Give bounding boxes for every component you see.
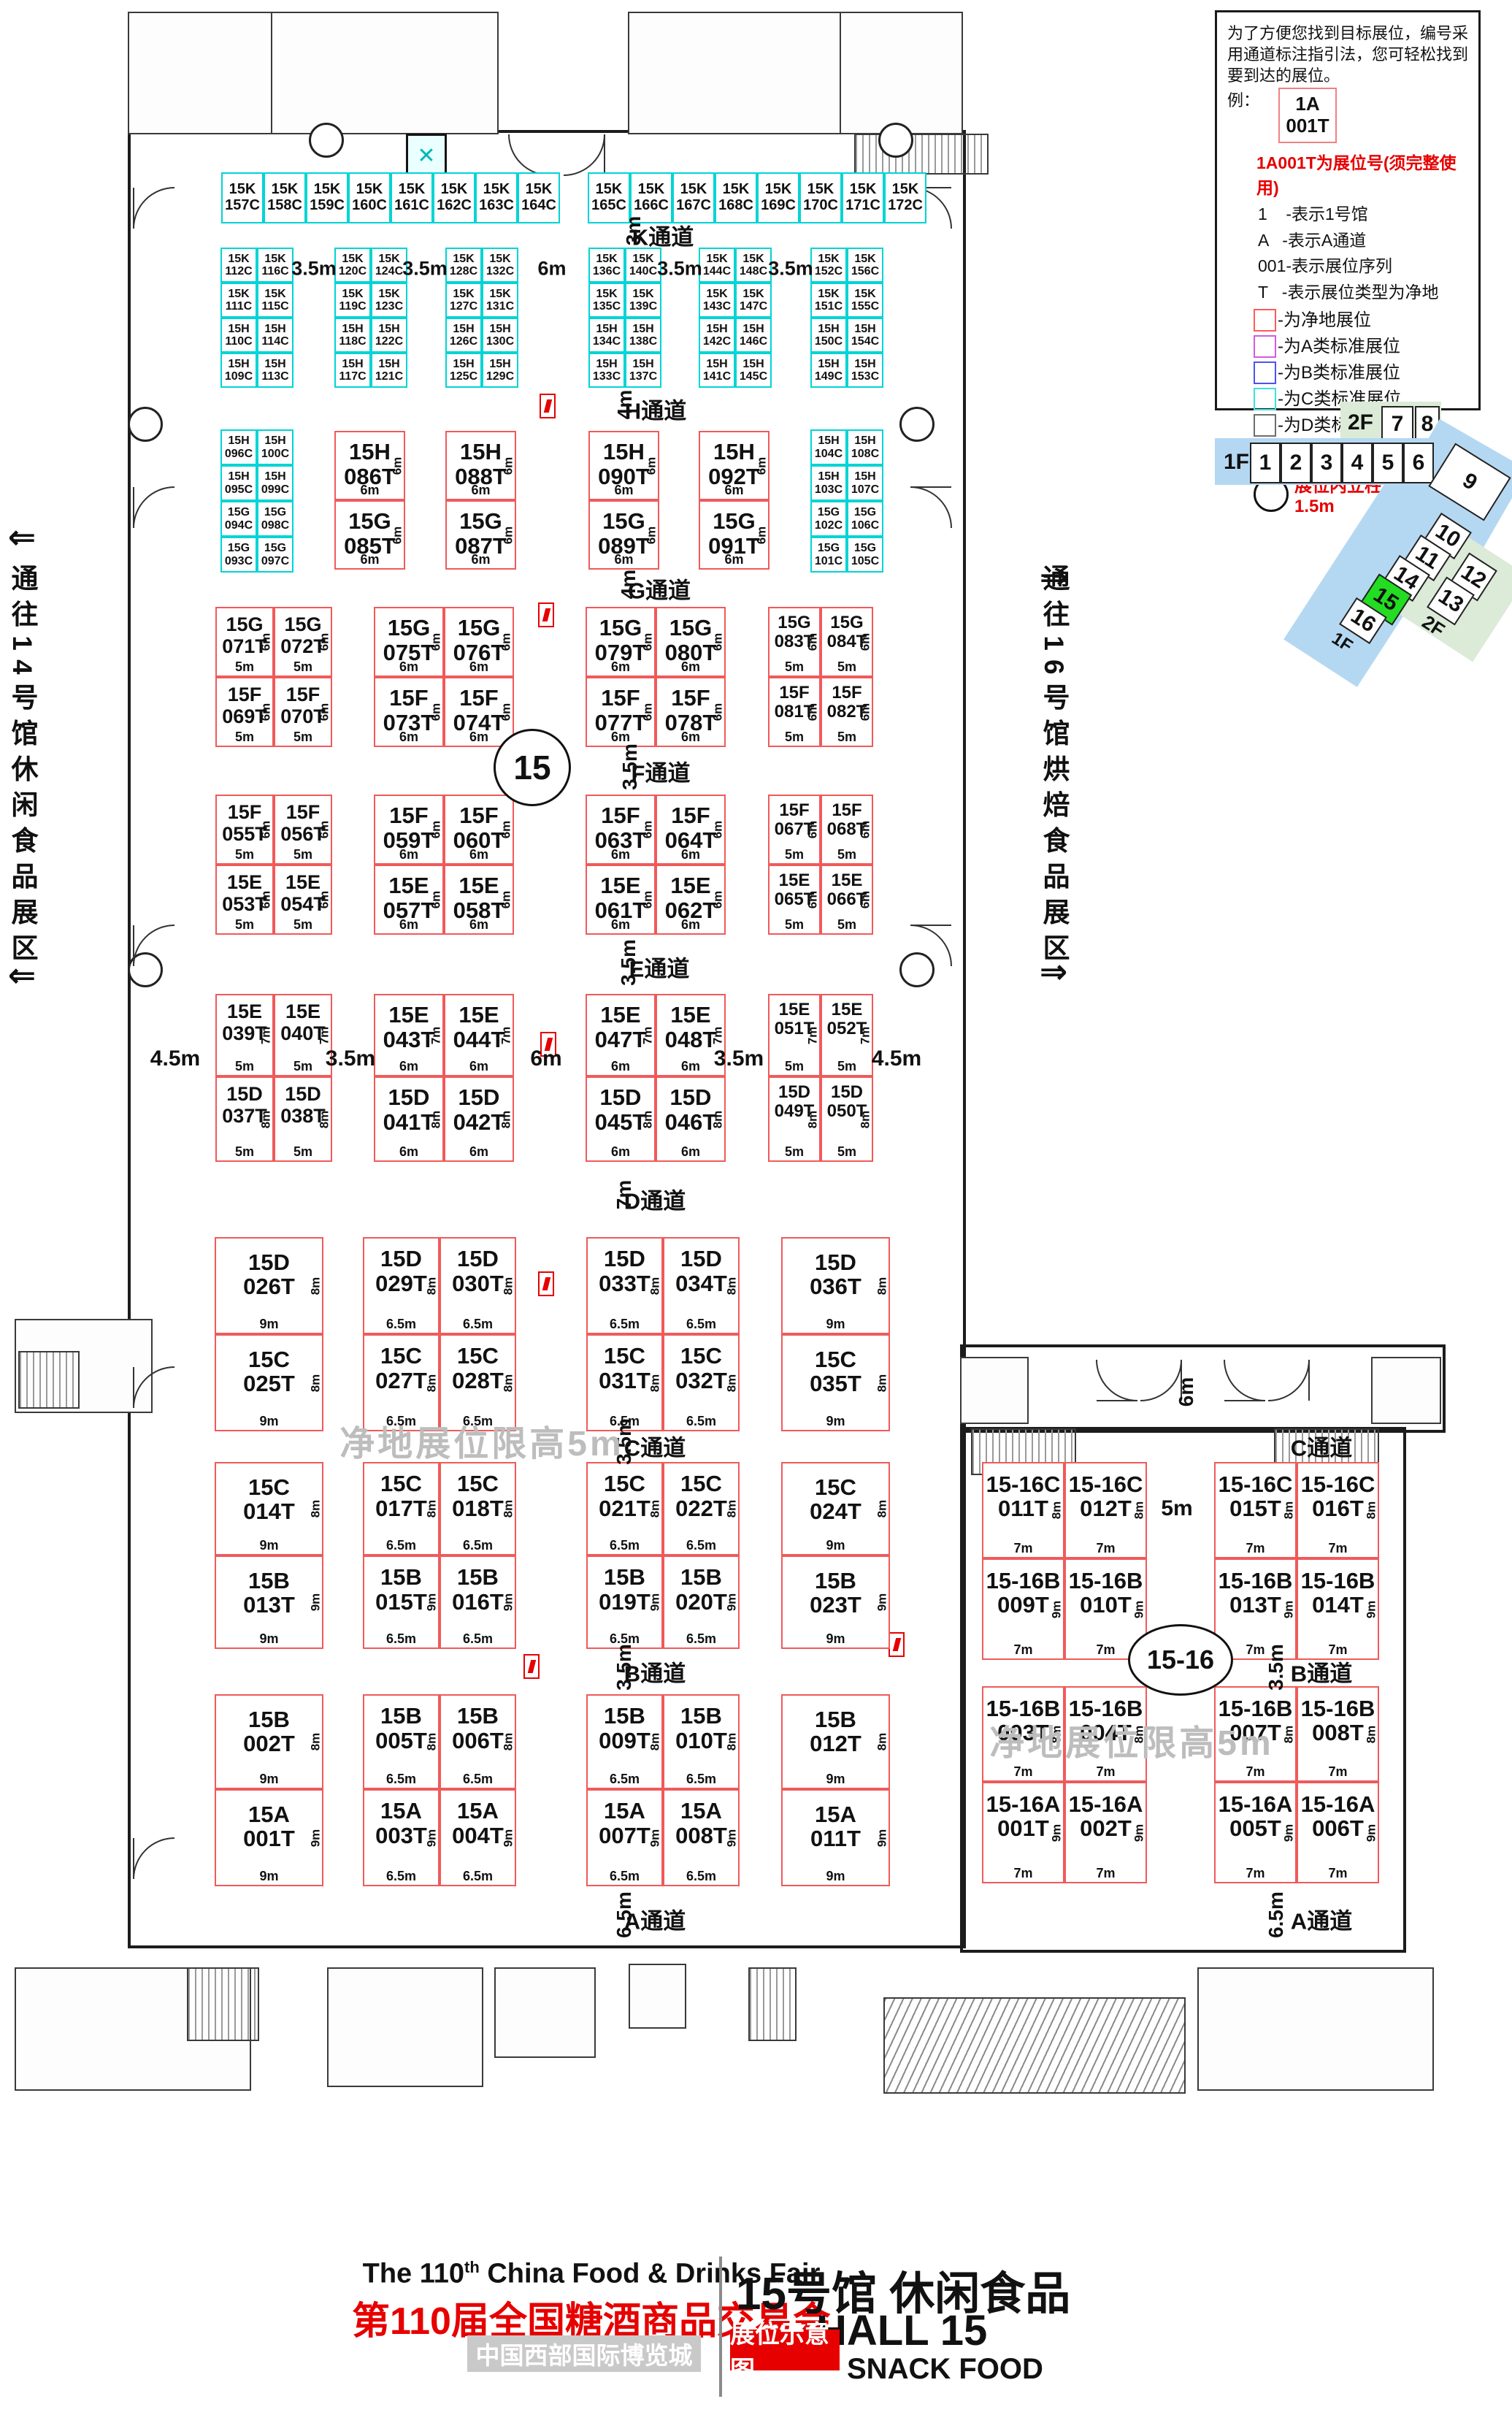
booth-depth-label: 8m (1050, 1501, 1064, 1520)
booth-code: 15C035T (810, 1347, 861, 1396)
booth-depth-label: 6m (318, 891, 332, 909)
booth-15K135C: 15K135C (588, 283, 625, 318)
swatch-text: -为B类标准展位 (1278, 364, 1400, 383)
booth-code: 15K123C (375, 288, 403, 313)
booth-15K139C: 15K139C (625, 283, 661, 318)
booth-code: 15D045T (595, 1085, 647, 1134)
booth-width-label: 5m (770, 847, 819, 862)
booth-code: 15C031T (599, 1344, 651, 1393)
booth-depth-label: 8m (711, 1110, 726, 1128)
booth-15K127C: 15K127C (445, 283, 482, 318)
booth-depth-label: 6m (711, 891, 726, 909)
booth-width-label: 7m (1216, 1866, 1295, 1881)
booth-code: 15G098C (261, 506, 289, 532)
legend-example-booth: 1A 001T (1278, 88, 1337, 143)
booth-code: 15K147C (740, 288, 767, 313)
booth-width-label: 6m (375, 1059, 442, 1074)
top-room-2 (840, 12, 963, 134)
booth-depth-label: 6m (502, 456, 516, 475)
booth-code: 15C022T (675, 1471, 727, 1520)
booth-depth-label: 6m (859, 703, 873, 722)
plan-label-36: 净地展位限高5m (989, 1714, 1273, 1765)
legend-example: 例： 1A 001T (1227, 88, 1470, 143)
booth-code: 15H114C (261, 323, 288, 348)
booth-width-label: 5m (822, 659, 872, 675)
booth-depth-label: 6m (806, 703, 821, 722)
booth-code: 15H125C (450, 358, 477, 383)
booth-depth-label: 8m (648, 1500, 663, 1518)
plan-label-22: 6.5m (613, 1891, 636, 1938)
booth-15D030T: 15D030T6.5m8m (440, 1237, 516, 1334)
booth-15K168C: 15K168C (715, 172, 757, 223)
booth-code: 15G076T (453, 616, 505, 665)
booth-code: 15H134C (593, 323, 621, 348)
booth-15K144C: 15K144C (699, 248, 735, 283)
booth-code: 15G079T (595, 616, 647, 665)
legend-intro: 为了方便您找到目标展位，编号采 用通道标注指引法，您可轻松找到 要到达的展位。 (1227, 23, 1470, 86)
booth-width-label: 5m (770, 1059, 819, 1074)
door-arc-11 (1095, 1358, 1139, 1402)
booth-code: 15H150C (815, 323, 843, 348)
booth-15-16C016T: 15-16C016T7m8m (1297, 1462, 1379, 1558)
booth-width-label: 5m (822, 847, 872, 862)
booth-15E047T: 15E047T6m7m (586, 994, 656, 1076)
booth-depth-label: 8m (725, 1733, 740, 1751)
booth-code: 15B019T (599, 1565, 651, 1614)
booth-code: 15D029T (375, 1247, 427, 1295)
booth-width-label: 6m (587, 1144, 654, 1160)
booth-15H145C: 15H145C (735, 353, 772, 388)
booth-code: 15H113C (261, 358, 288, 383)
booth-width-label: 7m (1216, 1764, 1295, 1780)
booth-15K132C: 15K132C (482, 248, 518, 283)
booth-15B023T: 15B023T9m9m (781, 1555, 890, 1649)
booth-depth-label: 8m (1282, 1501, 1297, 1520)
booth-code: 15F064T (665, 803, 717, 852)
booth-15B019T: 15B019T6.5m9m (586, 1555, 663, 1649)
title-divider (719, 2257, 722, 2397)
booth-code: 15G080T (665, 616, 717, 665)
door-arc-13 (1223, 1358, 1267, 1402)
plan-label-4: 6m (537, 258, 566, 280)
plan-label-27: A通道 (1291, 1903, 1352, 1936)
booth-width-label: 6m (657, 659, 724, 675)
hall-title-en: HALL 15 (816, 2306, 987, 2355)
booth-15B015T: 15B015T6.5m9m (363, 1555, 440, 1649)
booth-code: 15K162C (437, 182, 472, 213)
booth-depth-label: 9m (648, 1593, 663, 1612)
booth-depth-label: 6m (641, 891, 656, 909)
booth-15C021T: 15C021T6.5m8m (586, 1462, 663, 1555)
booth-depth-label: 6m (391, 456, 405, 475)
booth-depth-label: 6m (645, 526, 659, 544)
booth-15C032T: 15C032T6.5m8m (663, 1334, 740, 1431)
booth-15E058T: 15E058T6m6m (444, 865, 514, 935)
booth-width-label: 5m (217, 917, 272, 933)
booth-width-label: 6m (590, 552, 658, 567)
booth-width-label: 7m (1066, 1764, 1145, 1780)
booth-code: 15H145C (740, 358, 767, 383)
booth-code: 15K159C (310, 182, 345, 213)
booth-depth-label: 9m (725, 1829, 740, 1847)
booth-width-label: 5m (217, 847, 272, 862)
booth-15F078T: 15F078T6m6m (656, 677, 726, 747)
booth-depth-label: 6m (755, 456, 770, 475)
booth-code: 15H137C (629, 358, 657, 383)
booth-code: 15H096C (225, 435, 253, 460)
booth-depth-label: 8m (425, 1374, 440, 1392)
booth-code: 15K160C (352, 182, 387, 213)
booth-15F074T: 15F074T6m6m (444, 677, 514, 747)
booth-depth-label: 8m (502, 1277, 516, 1295)
booth-depth-label: 6m (755, 526, 770, 544)
booth-code: 15B005T (375, 1704, 427, 1753)
booth-code: 15K112C (225, 253, 252, 278)
booth-code: 15K115C (261, 288, 288, 313)
booth-15E039T: 15E039T5m7m (215, 994, 274, 1076)
booth-code: 15K116C (261, 253, 288, 278)
hall-number-circle: 15 (494, 729, 571, 806)
booth-code: 15K128C (450, 253, 477, 278)
booth-15B012T: 15B012T9m8m (781, 1694, 890, 1789)
booth-15E065T: 15E065T5m6m (768, 865, 821, 935)
booth-width-label: 6m (445, 917, 513, 933)
fire-hydrant-icon-2 (540, 394, 556, 418)
booth-code: 15D041T (383, 1085, 435, 1134)
booth-15H110C: 15H110C (220, 318, 257, 353)
booth-code: 15H109C (225, 358, 253, 383)
booth-15H108C: 15H108C (847, 429, 883, 465)
booth-depth-label: 8m (875, 1277, 890, 1295)
legend-code-4: T -表示展位类型为净地 (1258, 280, 1470, 306)
booth-width-label: 5m (217, 1059, 272, 1074)
booth-code: 15C017T (375, 1471, 427, 1520)
door-arc-14 (1267, 1358, 1310, 1402)
booth-code: 15H141C (703, 358, 731, 383)
booth-15-16C012T: 15-16C012T7m8m (1064, 1462, 1147, 1558)
booth-depth-label: 6m (391, 526, 405, 544)
booth-width-label: 6m (447, 483, 515, 498)
booth-15K151C: 15K151C (810, 283, 847, 318)
booth-15G094C: 15G094C (220, 501, 257, 537)
booth-15A008T: 15A008T6.5m9m (663, 1789, 740, 1886)
booth-code: 15H092T (708, 440, 760, 489)
booth-width-label: 5m (275, 659, 331, 675)
booth-15F055T: 15F055T5m6m (215, 795, 274, 865)
booth-code: 15B016T (452, 1565, 504, 1614)
booth-code: 15H099C (261, 470, 289, 496)
booth-15D038T: 15D038T5m8m (274, 1076, 332, 1162)
booth-width-label: 9m (216, 1869, 322, 1884)
booth-depth-label: 8m (499, 1110, 514, 1128)
booth-width-label: 6m (700, 483, 768, 498)
door-arc-4 (132, 1366, 176, 1409)
plan-label-25: B通道 (1291, 1656, 1352, 1688)
booth-code: 15K144C (703, 253, 731, 278)
booth-15K111C: 15K111C (220, 283, 257, 318)
booth-code: 15A007T (599, 1799, 651, 1848)
booth-depth-label: 8m (425, 1733, 440, 1751)
booth-width-label: 5m (822, 1144, 872, 1160)
booth-width-label: 7m (1298, 1866, 1378, 1881)
booth-depth-label: 6m (429, 703, 444, 722)
booth-code: 15H138C (629, 323, 657, 348)
booth-15K128C: 15K128C (445, 248, 482, 283)
booth-15C022T: 15C022T6.5m8m (663, 1462, 740, 1555)
booth-depth-label: 6m (499, 891, 514, 909)
booth-code: 15A011T (810, 1802, 861, 1851)
booth-15H141C: 15H141C (699, 353, 735, 388)
booth-depth-label: 6m (641, 633, 656, 651)
booth-15K158C: 15K158C (264, 172, 306, 223)
booth-code: 15G097C (261, 542, 289, 567)
booth-depth-label: 6m (318, 633, 332, 651)
booth-15G085T: 15G085T6m6m (334, 500, 405, 570)
booth-code: 15A001T (243, 1802, 295, 1851)
booth-width-label: 6m (445, 1144, 513, 1160)
booth-width-label: 6.5m (588, 1772, 661, 1787)
plan-tag: 展位示意图 (730, 2330, 840, 2370)
booth-code: 15H090T (598, 440, 650, 489)
booth-depth-label: 8m (502, 1500, 516, 1518)
legend-note: 1A001T为展位号(须完整使用) (1256, 149, 1470, 199)
booth-depth-label: 8m (725, 1374, 740, 1392)
booth-width-label: 6.5m (588, 1538, 661, 1553)
booth-code: 15B023T (810, 1569, 861, 1618)
booth-code: 15H086T (344, 440, 396, 489)
booth-code: 15B002T (243, 1707, 295, 1756)
booth-depth-label: 9m (1050, 1600, 1064, 1618)
booth-width-label: 5m (217, 659, 272, 675)
booth-15G089T: 15G089T6m6m (588, 500, 659, 570)
booth-width-label: 6m (657, 730, 724, 745)
booth-15D046T: 15D046T6m8m (656, 1076, 726, 1162)
booth-depth-label: 8m (648, 1374, 663, 1392)
booth-width-label: 5m (770, 917, 819, 933)
booth-width-label: 5m (770, 1144, 819, 1160)
booth-code: 15C018T (452, 1471, 504, 1520)
booth-depth-label: 7m (641, 1026, 656, 1044)
booth-width-label: 6.5m (364, 1772, 438, 1787)
booth-code: 15H133C (593, 358, 621, 383)
booth-15K115C: 15K115C (257, 283, 293, 318)
booth-depth-label: 6m (259, 633, 274, 651)
booth-code: 15E048T (665, 1003, 717, 1052)
booth-depth-label: 9m (1282, 1823, 1297, 1842)
booth-depth-label: 8m (425, 1277, 440, 1295)
booth-15G072T: 15G072T5m6m (274, 607, 332, 677)
booth-depth-label: 9m (309, 1829, 323, 1847)
restroom-top-right (628, 12, 843, 134)
booth-depth-label: 9m (425, 1593, 440, 1612)
booth-code: 15C024T (810, 1475, 861, 1524)
booth-15B006T: 15B006T6.5m8m (440, 1694, 516, 1789)
booth-width-label: 6m (375, 847, 442, 862)
booth-code: 15C028T (452, 1344, 504, 1393)
booth-depth-label: 7m (711, 1026, 726, 1044)
booth-depth-label: 6m (259, 891, 274, 909)
booth-depth-label: 6m (429, 891, 444, 909)
booth-15K172C: 15K172C (884, 172, 926, 223)
booth-depth-label: 8m (1365, 1725, 1379, 1743)
booth-code: 15H100C (261, 435, 289, 460)
door-arc-8 (909, 924, 953, 968)
booth-code: 15B013T (243, 1569, 295, 1618)
fire-hydrant-icon-6 (889, 1632, 905, 1657)
booth-code: 15K111C (226, 288, 252, 313)
booth-width-label: 9m (216, 1631, 322, 1647)
booth-15H122C: 15H122C (371, 318, 407, 353)
booth-code: 15K155C (851, 288, 879, 313)
booth-15D045T: 15D045T6m8m (586, 1076, 656, 1162)
booth-code: 15A004T (452, 1799, 504, 1848)
booth-code: 15H107C (851, 470, 879, 496)
booth-15K147C: 15K147C (735, 283, 772, 318)
booth-15G105C: 15G105C (847, 537, 883, 573)
booth-15H092T: 15H092T6m6m (699, 431, 770, 500)
booth-15-16A001T: 15-16A001T7m9m (982, 1782, 1064, 1883)
booth-15G071T: 15G071T5m6m (215, 607, 274, 677)
booth-width-label: 6.5m (364, 1538, 438, 1553)
booth-15G098C: 15G098C (257, 501, 293, 537)
booth-15-16B008T: 15-16B008T7m8m (1297, 1686, 1379, 1782)
booth-code: 15B015T (375, 1565, 427, 1614)
booth-15F081T: 15F081T5m6m (768, 677, 821, 747)
booth-15D049T: 15D049T5m8m (768, 1076, 821, 1162)
plan-label-5: 3.5m (657, 258, 702, 280)
booth-15C035T: 15C035T9m8m (781, 1334, 890, 1431)
booth-code: 15K165C (591, 182, 626, 213)
booth-width-label: 9m (783, 1538, 889, 1553)
booth-code: 15H154C (851, 323, 879, 348)
stairs-top-right (854, 134, 989, 175)
swatch-color-box (1254, 361, 1276, 384)
booth-width-label: 5m (275, 917, 331, 933)
plan-label-37: ⇐ (8, 517, 37, 556)
booth-code: 15G093C (225, 542, 253, 567)
door-arc-3 (132, 924, 176, 968)
booth-width-label: 6m (587, 917, 654, 933)
booth-15F063T: 15F063T6m6m (586, 795, 656, 865)
booth-15K148C: 15K148C (735, 248, 772, 283)
booth-15F069T: 15F069T5m6m (215, 677, 274, 747)
booth-depth-label: 8m (875, 1374, 890, 1392)
booth-width-label: 6m (375, 1144, 442, 1160)
booth-code: 15B009T (599, 1704, 651, 1753)
booth-code: 15H095C (225, 470, 253, 496)
booth-code: 15K124C (375, 253, 403, 278)
plan-label-26: 3.5m (1265, 1644, 1288, 1691)
door-arc-9 (507, 133, 551, 177)
booth-code: 15D034T (675, 1247, 727, 1295)
legend-code-lines: 1 -表示1号馆A -表示A通道001-表示展位序列T -表示展位类型为净地 (1227, 202, 1470, 306)
plan-label-10: 4m (617, 570, 640, 599)
booth-15K170C: 15K170C (799, 172, 842, 223)
legend-intro-line3: 要到达的展位。 (1227, 65, 1470, 86)
booth-15K169C: 15K169C (757, 172, 799, 223)
minimap-hall-4: 4 (1342, 443, 1373, 483)
booth-code: 15K139C (629, 288, 657, 313)
booth-15K123C: 15K123C (371, 283, 407, 318)
minimap-hall-1: 1 (1250, 443, 1281, 483)
booth-15H103C: 15H103C (810, 465, 847, 501)
booth-width-label: 5m (275, 1144, 331, 1160)
booth-15K161C: 15K161C (391, 172, 433, 223)
plan-label-24: 6m (1175, 1377, 1198, 1406)
booth-code: 15B010T (675, 1704, 727, 1753)
booth-code: 15G089T (598, 509, 650, 558)
booth-15G093C: 15G093C (220, 537, 257, 573)
booth-depth-label: 9m (1050, 1823, 1064, 1842)
booth-code: 15H126C (450, 323, 477, 348)
booth-code: 15A003T (375, 1799, 427, 1848)
booth-width-label: 5m (275, 1059, 331, 1074)
booth-width-label: 7m (1298, 1764, 1378, 1780)
booth-15F073T: 15F073T6m6m (374, 677, 444, 747)
minimap-hall-7: 7 (1381, 406, 1413, 443)
booth-15B016T: 15B016T6.5m9m (440, 1555, 516, 1649)
booth-15K116C: 15K116C (257, 248, 293, 283)
booth-width-label: 9m (216, 1538, 322, 1553)
booth-code: 15K127C (450, 288, 477, 313)
swatch-text: -为A类标准展位 (1278, 337, 1400, 356)
booth-15B002T: 15B002T9m8m (215, 1694, 323, 1789)
booth-15-16A002T: 15-16A002T7m9m (1064, 1782, 1147, 1883)
plan-label-8: 4m (613, 390, 637, 419)
booth-code: 15G094C (225, 506, 253, 532)
booth-code: 15H146C (740, 323, 767, 348)
booth-width-label: 6m (590, 483, 658, 498)
booth-15K119C: 15K119C (334, 283, 371, 318)
booth-code: 15F059T (383, 803, 435, 852)
booth-width-label: 6.5m (441, 1631, 515, 1647)
booth-code: 15F074T (453, 686, 505, 735)
booth-code: 15A008T (675, 1799, 727, 1848)
booth-width-label: 9m (783, 1317, 889, 1332)
booth-code: 15K120C (339, 253, 367, 278)
booth-code: 15E044T (453, 1003, 505, 1052)
booth-width-label: 5m (822, 730, 872, 745)
booth-width-label: 5m (275, 730, 331, 745)
booth-width-label: 9m (216, 1772, 322, 1787)
booth-depth-label: 6m (259, 821, 274, 839)
booth-15B013T: 15B013T9m9m (215, 1555, 323, 1649)
booth-code: 15K166C (634, 182, 669, 213)
legend-example-top: 1A (1281, 93, 1334, 115)
booth-width-label: 6.5m (364, 1631, 438, 1647)
booth-15K156C: 15K156C (847, 248, 883, 283)
booth-15H114C: 15H114C (257, 318, 293, 353)
booth-15G106C: 15G106C (847, 501, 883, 537)
booth-15E061T: 15E061T6m6m (586, 865, 656, 935)
booth-width-label: 6.5m (664, 1414, 738, 1429)
booth-15H099C: 15H099C (257, 465, 293, 501)
booth-depth-label: 9m (502, 1829, 516, 1847)
booth-depth-label: 9m (1365, 1600, 1379, 1618)
booth-code: 15H130C (486, 323, 514, 348)
booth-code: 15F073T (383, 686, 435, 735)
title-superscript: th (464, 2258, 480, 2276)
booth-15E057T: 15E057T6m6m (374, 865, 444, 935)
venue-bar: 中国西部国际博览城 (467, 2335, 701, 2372)
booth-15F059T: 15F059T6m6m (374, 795, 444, 865)
booth-15H125C: 15H125C (445, 353, 482, 388)
booth-15G101C: 15G101C (810, 537, 847, 573)
booth-depth-label: 8m (429, 1110, 444, 1128)
booth-depth-label: 6m (711, 821, 726, 839)
booth-code: 15C027T (375, 1344, 427, 1393)
booth-15B020T: 15B020T6.5m9m (663, 1555, 740, 1649)
